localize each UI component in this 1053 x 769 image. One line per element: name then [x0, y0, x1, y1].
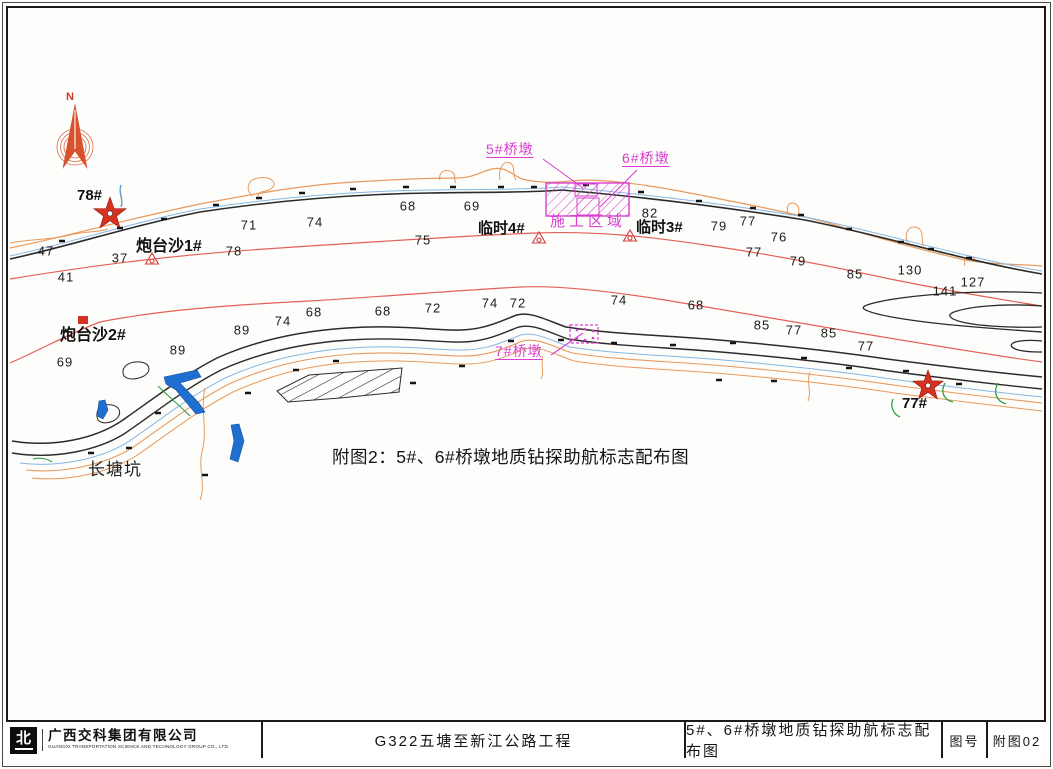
drawing-sheet: 4737417871746869758279777677798513014112…: [0, 0, 1053, 769]
depth-sounding: 79: [711, 220, 727, 233]
depth-sounding: 74: [482, 297, 498, 310]
depth-sounding: 72: [510, 297, 526, 310]
figure-number-label-cell: 图号: [943, 722, 988, 758]
pier-6-label: 6#桥墩: [622, 151, 670, 165]
pier-5-label: 5#桥墩: [486, 142, 534, 156]
depth-sounding: 68: [688, 299, 704, 312]
depth-sounding: 75: [415, 234, 431, 247]
title-bar: 北 广西交科集团有限公司 GUANGXI TRANSPORTATION SCIE…: [6, 720, 1046, 758]
depth-sounding: 85: [754, 319, 770, 332]
beacon-78-label: 78#: [77, 188, 102, 203]
company-name: 广西交科集团有限公司: [48, 729, 230, 744]
depth-sounding: 77: [786, 324, 802, 337]
depth-sounding: 127: [961, 276, 986, 289]
depth-sounding: 68: [375, 305, 391, 318]
depth-sounding: 69: [464, 200, 480, 213]
depth-sounding: 77: [746, 246, 762, 259]
company-name-en: GUANGXI TRANSPORTATION SCIENCE AND TECHN…: [48, 744, 230, 750]
depth-sounding: 76: [771, 231, 787, 244]
depth-sounding: 69: [57, 356, 73, 369]
figure-number-value: 附图02: [993, 731, 1041, 750]
depth-sounding: 68: [306, 306, 322, 319]
depth-sounding: 85: [847, 268, 863, 281]
depth-sounding: 74: [611, 294, 627, 307]
depth-sounding: 89: [234, 324, 250, 337]
depth-sounding: 68: [400, 200, 416, 213]
changtangkeng-label: 长塘坑: [88, 461, 142, 478]
project-cell: G322五塘至新江公路工程: [263, 722, 686, 758]
project-name: G322五塘至新江公路工程: [375, 730, 573, 751]
pier-7-label: 7#桥墩: [495, 344, 543, 358]
linshi-4-label: 临时4#: [478, 221, 525, 236]
paotaisha-1-label: 炮台沙1#: [136, 239, 202, 255]
company-cell: 北 广西交科集团有限公司 GUANGXI TRANSPORTATION SCIE…: [6, 722, 263, 758]
depth-sounding: 79: [790, 255, 806, 268]
paotaisha-2-label: 炮台沙2#: [60, 328, 126, 344]
depth-sounding: 74: [275, 315, 291, 328]
depth-sounding: 78: [226, 245, 242, 258]
logo-glyph-icon: 北: [16, 731, 31, 746]
depth-sounding: 82: [642, 207, 658, 220]
company-logo: 北: [10, 727, 37, 754]
depth-sounding: 77: [740, 215, 756, 228]
beacon-77-label: 77#: [902, 396, 927, 411]
drawing-title-cell: 5#、6#桥墩地质钻探助航标志配布图: [686, 722, 943, 758]
construction-area-label: 施工区域: [550, 214, 626, 229]
map-caption: 附图2：5#、6#桥墩地质钻探助航标志配布图: [332, 447, 689, 468]
depth-sounding: 37: [112, 252, 128, 265]
north-label: N: [66, 92, 74, 103]
map-labels-layer: 4737417871746869758279777677798513014112…: [0, 0, 1053, 769]
depth-sounding: 141: [933, 285, 958, 298]
depth-sounding: 72: [425, 302, 441, 315]
depth-sounding: 85: [821, 327, 837, 340]
depth-sounding: 41: [58, 271, 74, 284]
depth-sounding: 71: [241, 219, 257, 232]
drawing-title: 5#、6#桥墩地质钻探助航标志配布图: [686, 719, 941, 761]
depth-sounding: 130: [898, 264, 923, 277]
logo-bar: [15, 748, 33, 750]
company-text-block: 广西交科集团有限公司 GUANGXI TRANSPORTATION SCIENC…: [42, 729, 230, 750]
depth-sounding: 47: [38, 245, 54, 258]
depth-sounding: 77: [858, 340, 874, 353]
depth-sounding: 89: [170, 344, 186, 357]
depth-sounding: 74: [307, 216, 323, 229]
figure-number-label: 图号: [949, 731, 979, 750]
linshi-3-label: 临时3#: [636, 220, 683, 235]
figure-number-value-cell: 附图02: [988, 722, 1046, 758]
